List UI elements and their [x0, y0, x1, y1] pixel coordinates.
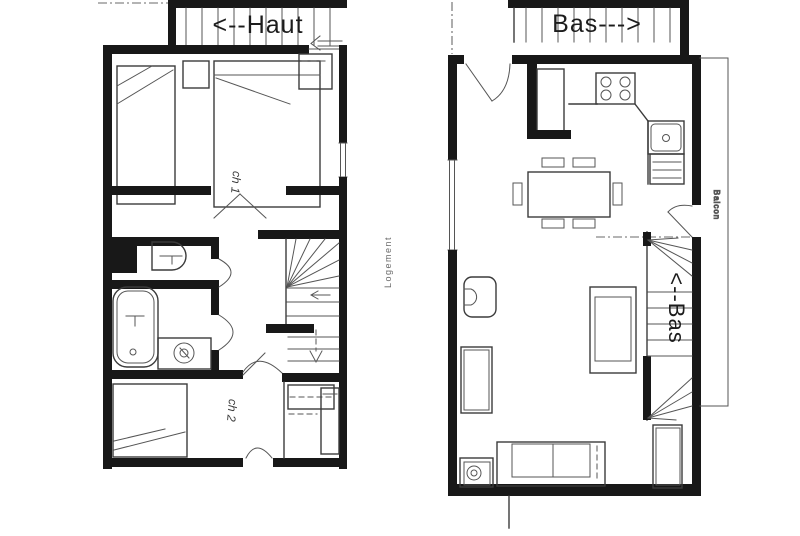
- bedroom1-furniture: ch 1: [117, 54, 332, 207]
- floorplan-canvas: <--Haut: [0, 0, 800, 536]
- down-arrow-icon: [310, 330, 322, 362]
- window-left: [448, 160, 457, 250]
- balcony-door-arc: [246, 448, 272, 458]
- window-right: [339, 143, 347, 177]
- sink: [648, 121, 684, 154]
- wood-stove: [460, 458, 493, 487]
- chair: [573, 158, 595, 167]
- bedroom1-label: ch 1: [228, 170, 244, 194]
- stairs-up-label: <--Haut: [212, 11, 303, 39]
- balcony: Balcon: [700, 58, 728, 406]
- bedroom2-furniture: ch 2: [113, 384, 240, 457]
- exterior-stairs-down: Bas--->: [452, 0, 689, 55]
- duct-shaft: [109, 246, 137, 273]
- interior-stairs-upper-floor: [258, 230, 347, 362]
- dining-table: [528, 172, 610, 217]
- sideboard: [653, 425, 682, 488]
- bedroom1-wall: [103, 186, 347, 218]
- entry-closet: [537, 69, 564, 131]
- bath-door-arc: [219, 315, 233, 350]
- tread-arrow-icon: [311, 291, 330, 299]
- bathtub: [113, 287, 158, 367]
- floorplan-drawing: <--Haut: [0, 0, 800, 536]
- interior-stairs-lower-floor: <--Bas: [643, 232, 692, 420]
- sofa: [497, 442, 605, 486]
- balcony-label: Balcon: [712, 190, 721, 220]
- side-room: [284, 382, 339, 458]
- entry-arrow-icon: [311, 36, 342, 50]
- balcony-door: [668, 205, 692, 237]
- upper-floor-plan: <--Haut: [98, 0, 393, 469]
- stove: [596, 73, 635, 104]
- chair: [542, 219, 564, 228]
- wall-cabinet: [461, 347, 492, 413]
- bed2: [113, 384, 187, 457]
- bench-bed: [590, 287, 636, 373]
- dining-set: [513, 158, 622, 228]
- toilet: [464, 277, 496, 317]
- chair: [542, 158, 564, 167]
- bathroom-block: [103, 237, 233, 373]
- chair: [513, 183, 522, 205]
- chair: [573, 219, 595, 228]
- lower-floor-plan: Bas--->: [448, 0, 728, 528]
- vertical-note: Logement: [383, 236, 393, 288]
- entry-partition: [527, 63, 571, 139]
- entry-door: [466, 64, 510, 101]
- bunk-bed: [321, 388, 339, 454]
- wc-fixture: [464, 277, 496, 317]
- bedroom2-door-arc: [243, 361, 282, 373]
- kitchen: [569, 73, 692, 237]
- bedroom2-label: ch 2: [224, 398, 240, 422]
- stairs-inner-label: <--Bas: [664, 272, 689, 343]
- wc-door-arc: [219, 259, 231, 287]
- stairs-down-label: Bas--->: [552, 10, 642, 38]
- wardrobe: [299, 54, 332, 89]
- chair: [613, 183, 622, 205]
- nightstand: [183, 61, 209, 88]
- dishwasher: [650, 154, 684, 184]
